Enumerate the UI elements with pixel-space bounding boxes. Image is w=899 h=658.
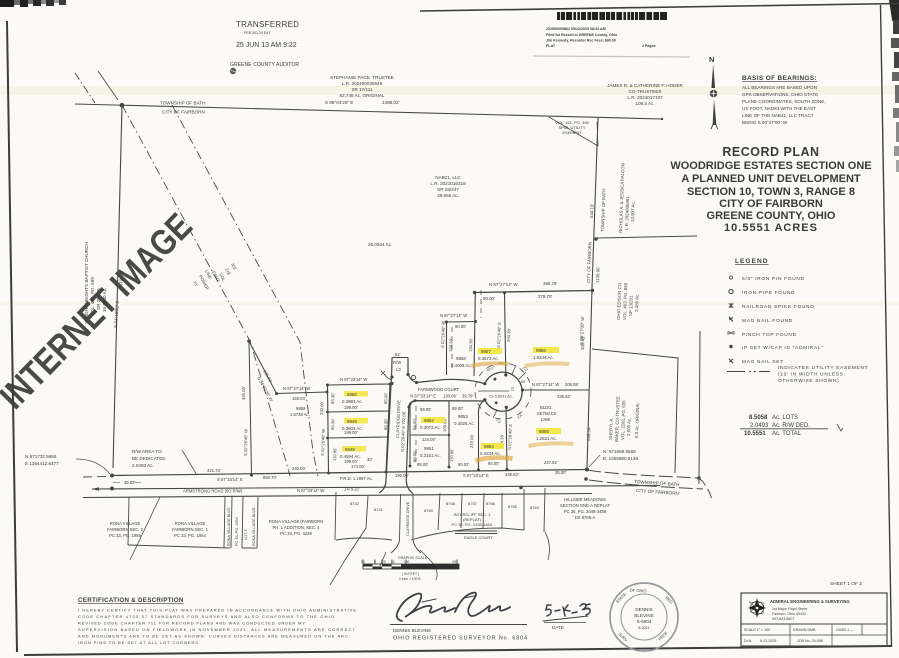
svg-text:1 inch = 100 ft.: 1 inch = 100 ft. [399,577,421,581]
svg-text:S 02°26'46" E: S 02°26'46" E [496,322,502,348]
svg-text:80.30': 80.30' [383,418,388,430]
svg-text:Fairborn, Ohio 45432: Fairborn, Ohio 45432 [772,612,806,616]
svg-text:FEB 301.20 E#T: FEB 301.20 E#T [244,31,271,35]
svg-text:240.00': 240.00' [292,466,306,471]
svg-text:9858: 9858 [456,356,466,361]
svg-text:NAB21, LLC: NAB21, LLC [435,175,461,180]
svg-text:S-6804: S-6804 [637,619,652,624]
svg-text:BE DEDICATED: BE DEDICATED [132,456,166,461]
svg-text:OHIO REGISTERED SURVEYOR No. 6: OHIO REGISTERED SURVEYOR No. 6804 [393,636,527,642]
svg-text:SR 17/111: SR 17/111 [351,87,372,92]
svg-text:S 89°04'20" E: S 89°04'20" E [325,100,353,105]
svg-text:Ac. TOTAL: Ac. TOTAL [772,431,802,437]
svg-text:MAG NAIL FOUND: MAG NAIL FOUND [742,318,793,324]
svg-text:110.86': 110.86' [332,447,337,461]
svg-text:PC 33, PG. 1954: PC 33, PG. 1954 [174,533,206,538]
svg-text:35': 35' [486,368,491,372]
svg-text:84.00': 84.00' [412,418,417,430]
svg-text:SUPERVISION BASED ON FIELDWORK: SUPERVISION BASED ON FIELDWORK IN NOVEMB… [78,627,356,632]
svg-text:LINE OF THE NAB21, LLC TRACT: LINE OF THE NAB21, LLC TRACT [742,113,814,118]
svg-text:SHEET 1 OF 2: SHEET 1 OF 2 [830,581,862,587]
svg-text:SETBACK: SETBACK [537,411,557,416]
svg-text:Filed for Record in GREENE Cou: Filed for Record in GREENE County, Ohio [546,33,618,37]
svg-text:ALL BEARINGS ARE BASED UPON: ALL BEARINGS ARE BASED UPON [742,85,817,90]
svg-text:FAIRBORN SEC. 1: FAIRBORN SEC. 1 [172,527,209,532]
svg-text:N 87°33'14" W: N 87°33'14" W [297,488,324,493]
svg-text:5-12-2025: 5-12-2025 [760,639,776,643]
svg-text:ESEMENT: ESEMENT [562,130,582,135]
svg-text:AND MONUMENTS ARE TO BE SET AS: AND MONUMENTS ARE TO BE SET AS SHOWN. CU… [78,634,350,639]
svg-text:VOL. 436, PG. 599: VOL. 436, PG. 599 [90,277,95,316]
svg-text:L.R. 2021016318: L.R. 2021016318 [430,181,466,186]
svg-text:SECTION 10, TOWN 3, RANGE 8: SECTION 10, TOWN 3, RANGE 8 [687,186,855,198]
svg-text:159.04': 159.04' [292,396,306,401]
svg-text:247.82': 247.82' [544,460,558,465]
svg-text:174.00': 174.00' [351,464,365,469]
svg-text:CLAYRIDGE DRIVE: CLAYRIDGE DRIVE [406,501,410,536]
svg-text:305.42': 305.42' [580,335,586,350]
svg-text:206.88': 206.88' [565,382,579,387]
svg-text:0.3573 Ac.: 0.3573 Ac. [478,356,499,361]
svg-text:PC 33, PG. 3228: PC 33, PG. 3228 [280,531,312,536]
svg-text:Jim Kennedy, Recorder Rec: Jim Kennedy, Recorder Rec Fees: $80.00 [546,39,616,43]
svg-text:8766: 8766 [486,501,496,506]
svg-text:L.R. 202400035549: L.R. 202400035549 [342,81,383,86]
svg-text:8764: 8764 [530,505,540,510]
svg-text:EAGLE COURT: EAGLE COURT [464,535,493,540]
svg-text:90.02': 90.02' [458,462,469,467]
svg-text:L.R. 2024017197: L.R. 2024017197 [627,95,663,100]
svg-text:99.00': 99.00' [452,406,463,411]
svg-text:937-623-6607: 937-623-6607 [772,617,794,621]
svg-text:130.06': 130.06' [443,394,457,399]
svg-text:IRON PIPE FOUND: IRON PIPE FOUND [742,290,795,296]
svg-text:CITY OF FAIRBORN: CITY OF FAIRBORN [719,198,823,210]
svg-text:RONA VILLAGE (FAIRBORN: RONA VILLAGE (FAIRBORN [269,519,323,524]
svg-text:DENNIS BLEVINS: DENNIS BLEVINS [393,628,431,633]
svg-text:HILLSIDE MEADOWS: HILLSIDE MEADOWS [564,497,606,502]
svg-text:SECTION ONE-A REPLAT: SECTION ONE-A REPLAT [560,503,610,508]
svg-text:N 87°27'14" W: N 87°27'14" W [489,282,518,287]
svg-text:194.36': 194.36' [468,338,473,352]
svg-text:2.0493: 2.0493 [750,423,769,429]
svg-text:DENNIS: DENNIS [635,607,652,612]
svg-text:1.5738 Ac.: 1.5738 Ac. [290,412,310,417]
svg-text:SP 13/231: SP 13/231 [628,295,634,316]
svg-text:S 87°33'14" E: S 87°33'14" E [217,477,243,482]
svg-text:15.0000 Ac.: 15.0000 Ac. [102,288,107,312]
svg-text:6-2021: 6-2021 [638,626,649,630]
svg-text:336.83': 336.83' [557,394,571,399]
svg-text:1.2631 Ac.: 1.2631 Ac. [536,436,557,441]
svg-text:0.4008 Ac.: 0.4008 Ac. [451,363,472,368]
svg-text:E 1354412.6477: E 1354412.6477 [25,461,59,466]
svg-text:(10' IN WIDTH UNLESS: (10' IN WIDTH UNLESS [778,372,844,378]
svg-text:60': 60' [521,380,526,384]
svg-text:230.00': 230.00' [319,401,324,415]
svg-text:BLEVINS: BLEVINS [634,613,653,618]
svg-text:GREENE COUNTY, OHIO: GREENE COUNTY, OHIO [707,210,836,222]
svg-text:Cv 5.6031 Ac.: Cv 5.6031 Ac. [489,395,513,399]
svg-text:9859: 9859 [296,406,306,411]
svg-text:GPS OBSERVATIONS, OHIO STATE: GPS OBSERVATIONS, OHIO STATE [742,92,818,97]
svg-text:124.00': 124.00' [422,437,436,442]
svg-text:SHERYL A.: SHERYL A. [608,417,614,440]
svg-text:PLANE COORDINATES, SOUTH ZONE,: PLANE COORDINATES, SOUTH ZONE, [742,99,826,104]
svg-text:N: N [709,55,714,64]
svg-text:0.4234 Ac.: 0.4234 Ac. [480,451,501,456]
svg-text:9848: 9848 [345,447,355,452]
svg-text:CERTIFICATION & DESCRIPTION: CERTIFICATION & DESCRIPTION [78,597,184,604]
svg-text:24083-1 —: 24083-1 — [836,628,854,632]
svg-text:PC 32, PG. 1439-146X: PC 32, PG. 1439-146X [452,522,493,527]
svg-text:8741: 8741 [374,507,384,512]
svg-text:S 02°26'46" W: S 02°26'46" W [440,321,446,348]
svg-text:R/W AREA TO: R/W AREA TO [132,449,162,454]
svg-text:35.00': 35.00' [555,470,566,475]
svg-text:9855: 9855 [539,429,549,434]
svg-text:LINE: LINE [541,417,551,422]
svg-text:8769: 8769 [424,508,434,513]
svg-text:279.70': 279.70' [538,294,552,299]
svg-text:I HEREBY CERTIFY THAT THIS PLA: I HEREBY CERTIFY THAT THIS PLAT WAS PREP… [78,608,356,613]
svg-text:1479.21': 1479.21' [344,487,360,492]
svg-text:8.5058: 8.5058 [749,415,768,421]
svg-text:RECORD PLAN: RECORD PLAN [722,145,819,159]
svg-text:TRANSFERRED: TRANSFERRED [236,20,299,29]
svg-text:JOB No. 24-088: JOB No. 24-088 [797,639,823,643]
svg-text:PC 36, PG. 3448-3458: PC 36, PG. 3448-3458 [564,509,607,514]
svg-text:202500009862 05/12/2025 0: 202500009862 05/12/2025 08:34 AM [546,27,606,31]
svg-text:421.76': 421.76' [207,468,221,473]
svg-text:99.00': 99.00' [420,407,431,412]
svg-text:2 Pages: 2 Pages [642,44,656,48]
svg-text:N: 671668.8568: N: 671668.8568 [603,449,636,454]
svg-text:STEPHANIE PAGE, TRUSTEE: STEPHANIE PAGE, TRUSTEE [330,75,394,80]
svg-text:85.00': 85.00' [383,392,388,404]
svg-text:INDICATES UTILITY EASEMENT: INDICATES UTILITY EASEMENT [778,365,868,371]
svg-text:52': 52' [395,352,401,357]
svg-text:GREENE COUNTY AUDITOR: GREENE COUNTY AUDITOR [230,62,299,68]
svg-text:FARMWOOD COURT: FARMWOOD COURT [418,387,460,392]
svg-text:L3: L3 [396,367,401,372]
svg-text:0.4594 Ac.: 0.4594 Ac. [340,454,361,459]
svg-text:RONA VILLAGE BLVD.: RONA VILLAGE BLVD. [252,507,256,546]
svg-text:RAILROAD SPIKE FOUND: RAILROAD SPIKE FOUND [742,304,814,310]
svg-text:US FOOT, NAD83 WITH THE EAST: US FOOT, NAD83 WITH THE EAST [742,106,816,111]
svg-text:100: 100 [404,560,410,564]
svg-text:95.00': 95.00' [417,462,428,467]
svg-text:39.556 Ac.: 39.556 Ac. [437,193,459,198]
svg-text:9853: 9853 [458,414,468,419]
svg-text:IP SET W/CAP ID "ADMIRAL": IP SET W/CAP ID "ADMIRAL" [742,345,824,351]
svg-text:8767: 8767 [468,501,478,506]
svg-text:2.0493 Ac.: 2.0493 Ac. [132,463,154,468]
svg-text:10.5551 ACRES: 10.5551 ACRES [724,222,818,234]
svg-text:109.3 Ac.: 109.3 Ac. [635,101,654,106]
svg-text:PH. 1 ADDITION, SEC. 4: PH. 1 ADDITION, SEC. 4 [272,525,320,530]
svg-text:80.30': 80.30' [330,418,335,430]
svg-text:N 87°27'14" W: N 87°27'14" W [532,382,559,387]
svg-text:GRAPHIC SCALE: GRAPHIC SCALE [398,556,428,560]
svg-text:SR 25/915: SR 25/915 [96,288,101,310]
svg-text:RONA VILLAGE BLVD.: RONA VILLAGE BLVD. [227,507,231,546]
svg-text:RONA VILLAGE: RONA VILLAGE [110,521,141,526]
svg-text:1st Major Floyd Street: 1st Major Floyd Street [772,607,807,611]
svg-text:90.00': 90.00' [483,296,495,301]
svg-text:850.70': 850.70' [263,475,277,480]
svg-text:0.3161 Ac.: 0.3161 Ac. [420,453,441,458]
svg-text:IRON PINS TO BE SET AT ALL LOT: IRON PINS TO BE SET AT ALL LOT CORNERS. [78,640,200,645]
svg-text:CITY OF FAIRBORN: CITY OF FAIRBORN [162,110,205,115]
svg-text:60.00': 60.00' [412,450,417,462]
svg-text:9851: 9851 [424,446,434,451]
svg-text:TOWNSHIP OF BATH: TOWNSHIP OF BATH [160,101,205,106]
svg-text:199.00': 199.00' [344,405,358,410]
svg-text:110.86': 110.86' [449,448,454,462]
svg-text:DS 8768-A: DS 8768-A [575,515,596,520]
svg-text:FAIRBORN SEC. 2: FAIRBORN SEC. 2 [107,527,144,532]
svg-text:PINCH TOP FOUND: PINCH TOP FOUND [742,332,797,338]
svg-text:9856: 9856 [536,348,546,353]
svg-text:219.00': 219.00' [469,434,474,448]
svg-text:N 87°27'14" W: N 87°27'14" W [283,386,310,391]
svg-text:254.38': 254.38' [506,328,511,342]
svg-text:1138.06': 1138.06' [595,266,601,283]
svg-text:N 87°33'14" W: N 87°33'14" W [340,377,367,382]
svg-text:DATE: DATE [552,625,564,630]
svg-text:35.83': 35.83' [124,480,135,485]
svg-text:0.3072 Ac.: 0.3072 Ac. [420,425,441,430]
svg-text:N 02°26'46" E: N 02°26'46" E [507,424,513,450]
svg-text:8765: 8765 [508,504,518,509]
svg-text:P.R.D. 1.1987 Ac.: P.R.D. 1.1987 Ac. [340,476,373,481]
svg-text:245.34': 245.34' [586,426,592,441]
svg-text:3.485 Ac.: 3.485 Ac. [634,294,640,312]
svg-text:435.00': 435.00' [241,386,246,400]
svg-text:25: 25 [382,560,386,564]
svg-text:8742: 8742 [350,501,360,506]
svg-text:1.6244 Ac.: 1.6244 Ac. [533,355,554,360]
svg-text:LOT 3: LOT 3 [244,530,248,540]
svg-text:WRIGHT HEIGHTS BAPTIST CHURCH: WRIGHT HEIGHTS BAPTIST CHURCH [84,242,89,324]
svg-text:PLAT: PLAT [546,44,556,48]
svg-text:SCALE 1" = 100': SCALE 1" = 100' [744,628,771,632]
svg-text:39.79': 39.79' [462,394,473,399]
svg-text:E: 1355890.8136: E: 1355890.8136 [603,456,638,461]
svg-text:Ac. R/W DED.: Ac. R/W DED. [772,423,810,429]
svg-text:9852: 9852 [424,418,434,423]
svg-text:13.907 Ac.: 13.907 Ac. [630,201,636,222]
svg-text:5/8" IRON PIN FOUND: 5/8" IRON PIN FOUND [742,276,805,282]
svg-text:RONA VILLAGE: RONA VILLAGE [175,521,206,526]
svg-text:ADMIRAL ENGINEERING & SURVEYIN: ADMIRAL ENGINEERING & SURVEYING [770,599,850,604]
svg-text:0.4025 Ac.: 0.4025 Ac. [454,421,475,426]
svg-text:R/W: R/W [393,360,401,365]
svg-text:2.505 Ac.: 2.505 Ac. [626,418,632,436]
svg-text:A PLANNED UNIT DEVELOPMENT: A PLANNED UNIT DEVELOPMENT [681,173,861,185]
svg-text:CO-TRUSTEES: CO-TRUSTEES [629,89,662,94]
svg-text:13: 13 [510,387,515,392]
svg-text:OTHERWISE SHOWN): OTHERWISE SHOWN) [778,378,839,384]
svg-text:0.3883 Ac.: 0.3883 Ac. [342,399,363,404]
svg-text:8768: 8768 [446,501,456,506]
svg-text:S 02°26'46" W: S 02°26'46" W [243,429,248,456]
svg-text:WOODRIDGE ESTATES SECTION ONE: WOODRIDGE ESTATES SECTION ONE [670,160,871,172]
svg-text:N 87°33'14" E: N 87°33'14" E [410,394,436,399]
svg-text:9850: 9850 [347,392,357,397]
svg-text:336.83': 336.83' [505,472,519,477]
svg-text:10.5551: 10.5551 [744,431,766,437]
svg-text:90.00': 90.00' [455,324,466,329]
svg-text:366.76': 366.76' [543,281,557,286]
svg-text:PC 33, PG. 1959: PC 33, PG. 1959 [109,533,141,538]
svg-text:JAMES R. & CATHERINE F. HODE: JAMES R. & CATHERINE F. HODER [607,83,683,88]
svg-text:PC 33, PG. 1954: PC 33, PG. 1954 [235,517,239,546]
svg-text:SR 28/247: SR 28/247 [437,187,459,192]
svg-text:25 JUN 13 AM 9:22: 25 JUN 13 AM 9:22 [236,42,297,49]
svg-text:N 87°27'14" W: N 87°27'14" W [440,313,467,318]
svg-text:LEGEND: LEGEND [735,258,768,265]
svg-text:N 671732.5655: N 671732.5655 [25,454,57,459]
svg-text:194.30': 194.30' [448,338,453,352]
svg-text:9857: 9857 [481,349,491,354]
svg-text:30': 30' [367,457,373,462]
svg-text:95.00': 95.00' [488,461,499,466]
svg-text:BEING S 00°27'00" W: BEING S 00°27'00" W [742,120,788,125]
svg-text:REVISED CODE CHAPTER 711 FOR R: REVISED CODE CHAPTER 711 FOR RECORD PLAN… [78,621,305,626]
svg-text:85.30': 85.30' [330,392,335,404]
svg-text:190.00': 190.00' [395,473,409,478]
svg-text:25.0934 Ac.: 25.0934 Ac. [368,242,392,247]
svg-text:Dt.N.: Dt.N. [744,639,752,643]
svg-text:82.746 Ac. ORIGINAL: 82.746 Ac. ORIGINAL [340,93,385,98]
svg-text:DRAWN DMB: DRAWN DMB [793,628,816,632]
svg-text:50: 50 [391,560,395,564]
svg-text:9849: 9849 [347,419,357,424]
svg-text:OF OHIO: OF OHIO [630,588,647,594]
svg-text:ARMSTRONG ROAD (50' R/W): ARMSTRONG ROAD (50' R/W) [183,489,243,494]
svg-text:MAG NAIL SET: MAG NAIL SET [742,359,784,365]
svg-text:1488.02': 1488.02' [382,100,400,105]
svg-text:9854: 9854 [484,444,494,449]
svg-text:Ac. LOTS: Ac. LOTS [772,415,798,421]
svg-text:BLDG.: BLDG. [540,405,553,410]
svg-text:S 87°33'14" E: S 87°33'14" E [463,473,489,478]
svg-text:544.19': 544.19' [589,203,595,218]
svg-text:BASIS OF BEARINGS:: BASIS OF BEARINGS: [742,75,817,82]
svg-text:0.3603 Ac.: 0.3603 Ac. [342,426,363,431]
svg-text:S 02°26'46" W: S 02°26'46" W [320,429,326,456]
svg-text:( IN FEET ): ( IN FEET ) [402,572,419,576]
